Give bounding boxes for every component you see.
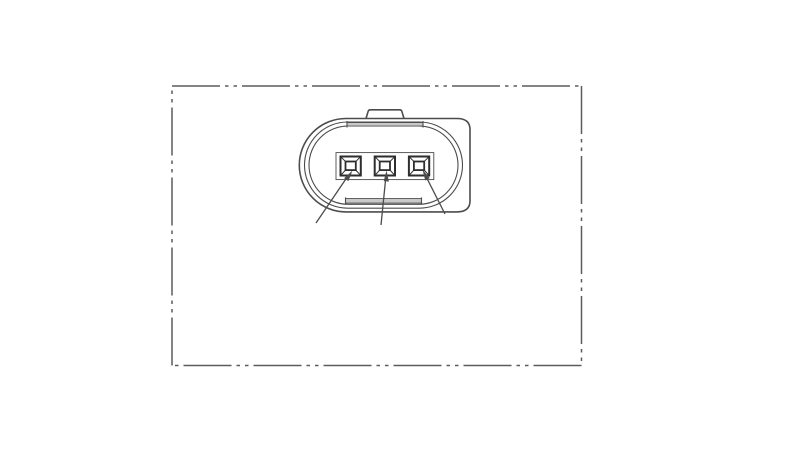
- drawing-canvas: [0, 0, 800, 451]
- pin-1-bevel-br: [356, 170, 360, 175]
- pin-1-leader: [316, 171, 353, 224]
- pin-1-bevel-tr: [356, 157, 360, 161]
- pin-3-bevel-bl: [410, 170, 414, 175]
- pin-3-leader-line: [426, 177, 445, 214]
- pin-3-bevel-tr: [424, 157, 428, 161]
- pin-2-bevel-tr: [390, 157, 394, 161]
- pin-3-inner-cavity: [414, 162, 424, 171]
- pin-3-bevel-tl: [410, 157, 414, 161]
- pin-3: [409, 157, 429, 176]
- pin-1-leader-line: [316, 177, 348, 223]
- top-shade-fill: [347, 123, 423, 127]
- pin-1-bevel-tl: [341, 157, 345, 161]
- pin-1-inner-cavity: [346, 162, 356, 171]
- connector-technical-drawing: [0, 0, 800, 451]
- pin-2: [375, 157, 395, 176]
- pin-2-bevel-bl: [376, 170, 380, 175]
- pin-2-bevel-tl: [376, 157, 380, 161]
- pin-2-bevel-br: [390, 170, 394, 175]
- pin-2-leader: [381, 171, 389, 226]
- pin-1-bevel-bl: [341, 170, 345, 175]
- pin-2-inner-cavity: [380, 162, 390, 171]
- phantom-reference-rectangle: [172, 86, 582, 366]
- connector-top-tab: [366, 110, 404, 119]
